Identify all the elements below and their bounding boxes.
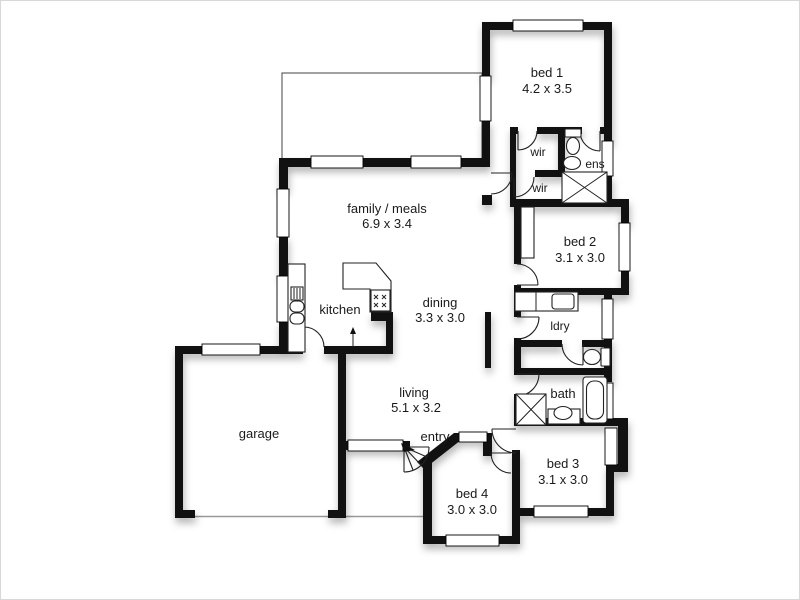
bed2-label: bed 2 [564,234,597,249]
dining-dims: 3.3 x 3.0 [415,310,465,325]
dining-label: dining [423,295,458,310]
door-ens [580,131,600,151]
window-bed1-top [513,20,583,31]
window-family-left-2 [277,276,289,322]
bath-shower [516,394,546,425]
floor-plan-drawing: bed 1 4.2 x 3.5 family / meals 6.9 x 3.4… [0,0,800,600]
window-bed1-left [480,76,491,121]
bed1-dims: 4.2 x 3.5 [522,81,572,96]
bed2-robe [521,207,534,258]
kitchen-bench-sink [288,264,305,352]
bathtub [583,377,607,423]
bath-basin [554,407,572,420]
door-wc [562,344,583,365]
living-label: living [399,385,429,400]
window-garage [202,344,260,355]
window-bed3-bottom [534,506,588,517]
door-kitchen-garage [304,327,324,347]
door-leaf-passage [350,327,356,347]
entry-label: entry [421,429,450,444]
window-bed4-bottom [446,535,499,546]
window-family-top-2 [411,156,461,168]
door-hall-family [491,173,512,194]
bed3-dims: 3.1 x 3.0 [538,472,588,487]
window-family-left-1 [277,189,289,237]
living-dims: 5.1 x 3.2 [391,400,441,415]
door-ldry [517,317,539,339]
window-family-top-1 [311,156,363,168]
kitchen-cooktop [371,290,390,311]
ens-toilet-bowl [567,138,580,155]
bed3-label: bed 3 [547,456,580,471]
door-bed2 [517,264,538,285]
bed2-dims: 3.1 x 3.0 [555,250,605,265]
window-bed2-right [619,223,630,271]
ens-toilet-tank [565,129,581,137]
window-ldry-right [602,299,613,339]
ens-shower [562,172,607,203]
window-bed3-bay [605,428,617,465]
door-wir2 [514,177,534,197]
wir2-label: wir [531,181,547,195]
wir1-label: wir [529,145,545,159]
bed4-label: bed 4 [456,486,489,501]
door-bed4 [491,453,511,473]
bed4-dims: 3.0 x 3.0 [447,502,497,517]
bed1-label: bed 1 [531,65,564,80]
family-label: family / meals [347,201,427,216]
ldry-bench [515,292,578,311]
kitchen-label: kitchen [319,302,360,317]
wc-toilet-tank [601,348,610,366]
wc-toilet-bowl [584,350,601,365]
ldry-label: ldry [550,319,569,333]
ldry-sink [552,294,574,309]
fixtures [288,129,610,425]
floor-plan-page: bed 1 4.2 x 3.5 family / meals 6.9 x 3.4… [0,0,800,600]
ens-label: ens [585,157,604,171]
bath-label: bath [550,386,575,401]
door-bath [517,374,539,396]
window-bed4-top [459,432,487,442]
family-dims: 6.9 x 3.4 [362,216,412,231]
door-bed3 [492,429,516,453]
window-living-south [348,440,403,451]
ens-basin [564,157,581,170]
garage-label: garage [239,426,279,441]
